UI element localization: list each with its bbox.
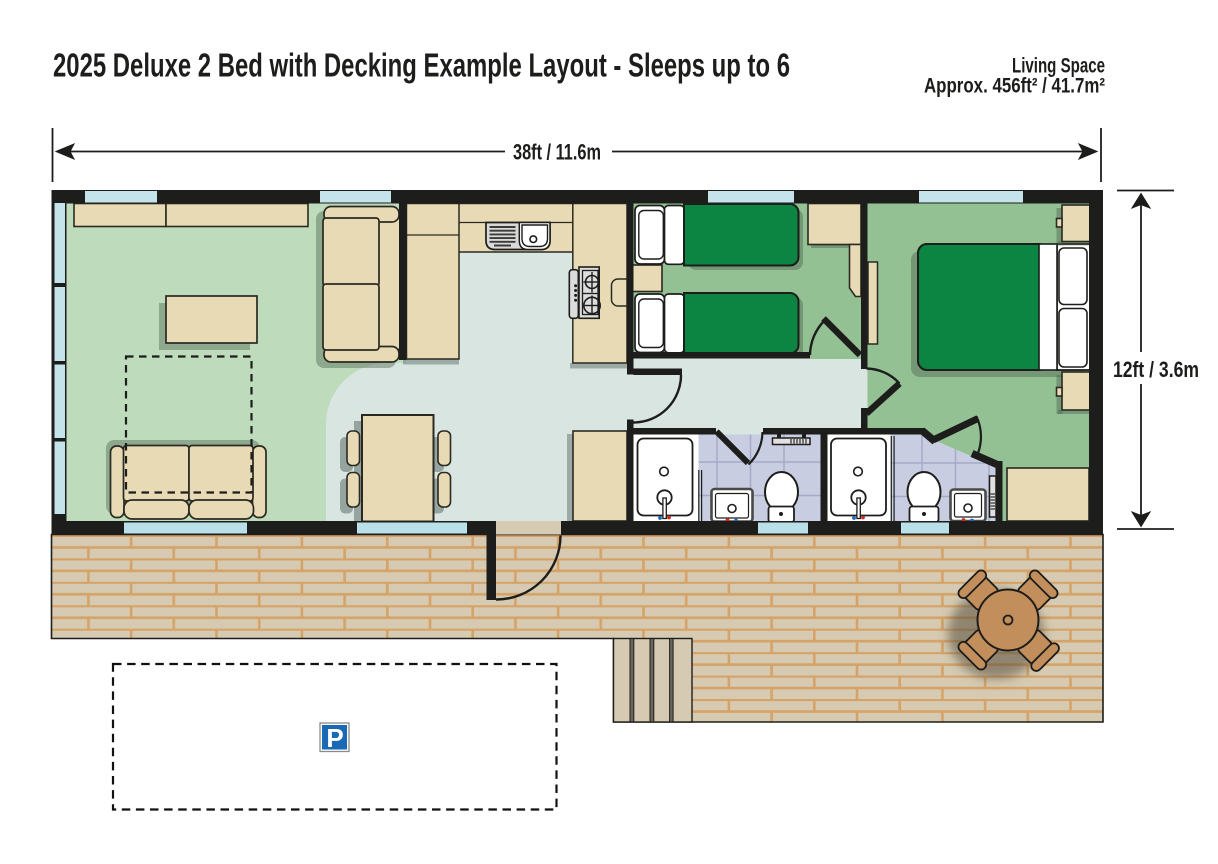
- svg-text:38ft / 11.6m: 38ft / 11.6m: [513, 140, 601, 165]
- svg-text:P: P: [326, 723, 343, 753]
- svg-text:12ft / 3.6m: 12ft / 3.6m: [1113, 357, 1199, 382]
- svg-text:Approx. 456ft² / 41.7m²: Approx. 456ft² / 41.7m²: [924, 75, 1105, 98]
- svg-text:2025 Deluxe 2 Bed with Decking: 2025 Deluxe 2 Bed with Decking Example L…: [53, 47, 790, 84]
